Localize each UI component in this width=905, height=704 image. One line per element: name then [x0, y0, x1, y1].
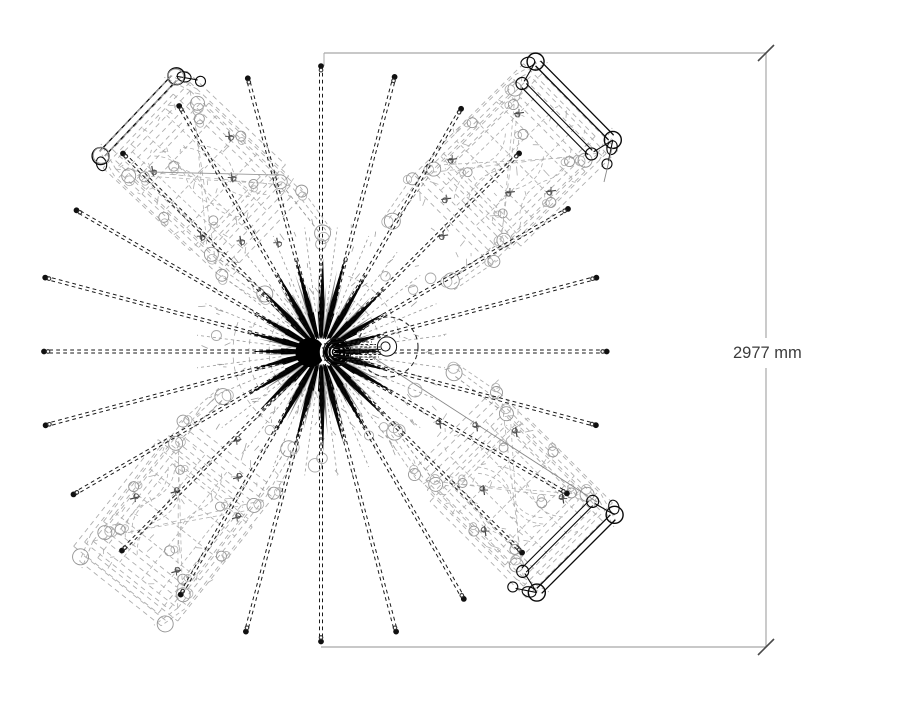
- svg-text:2977 mm: 2977 mm: [733, 344, 802, 362]
